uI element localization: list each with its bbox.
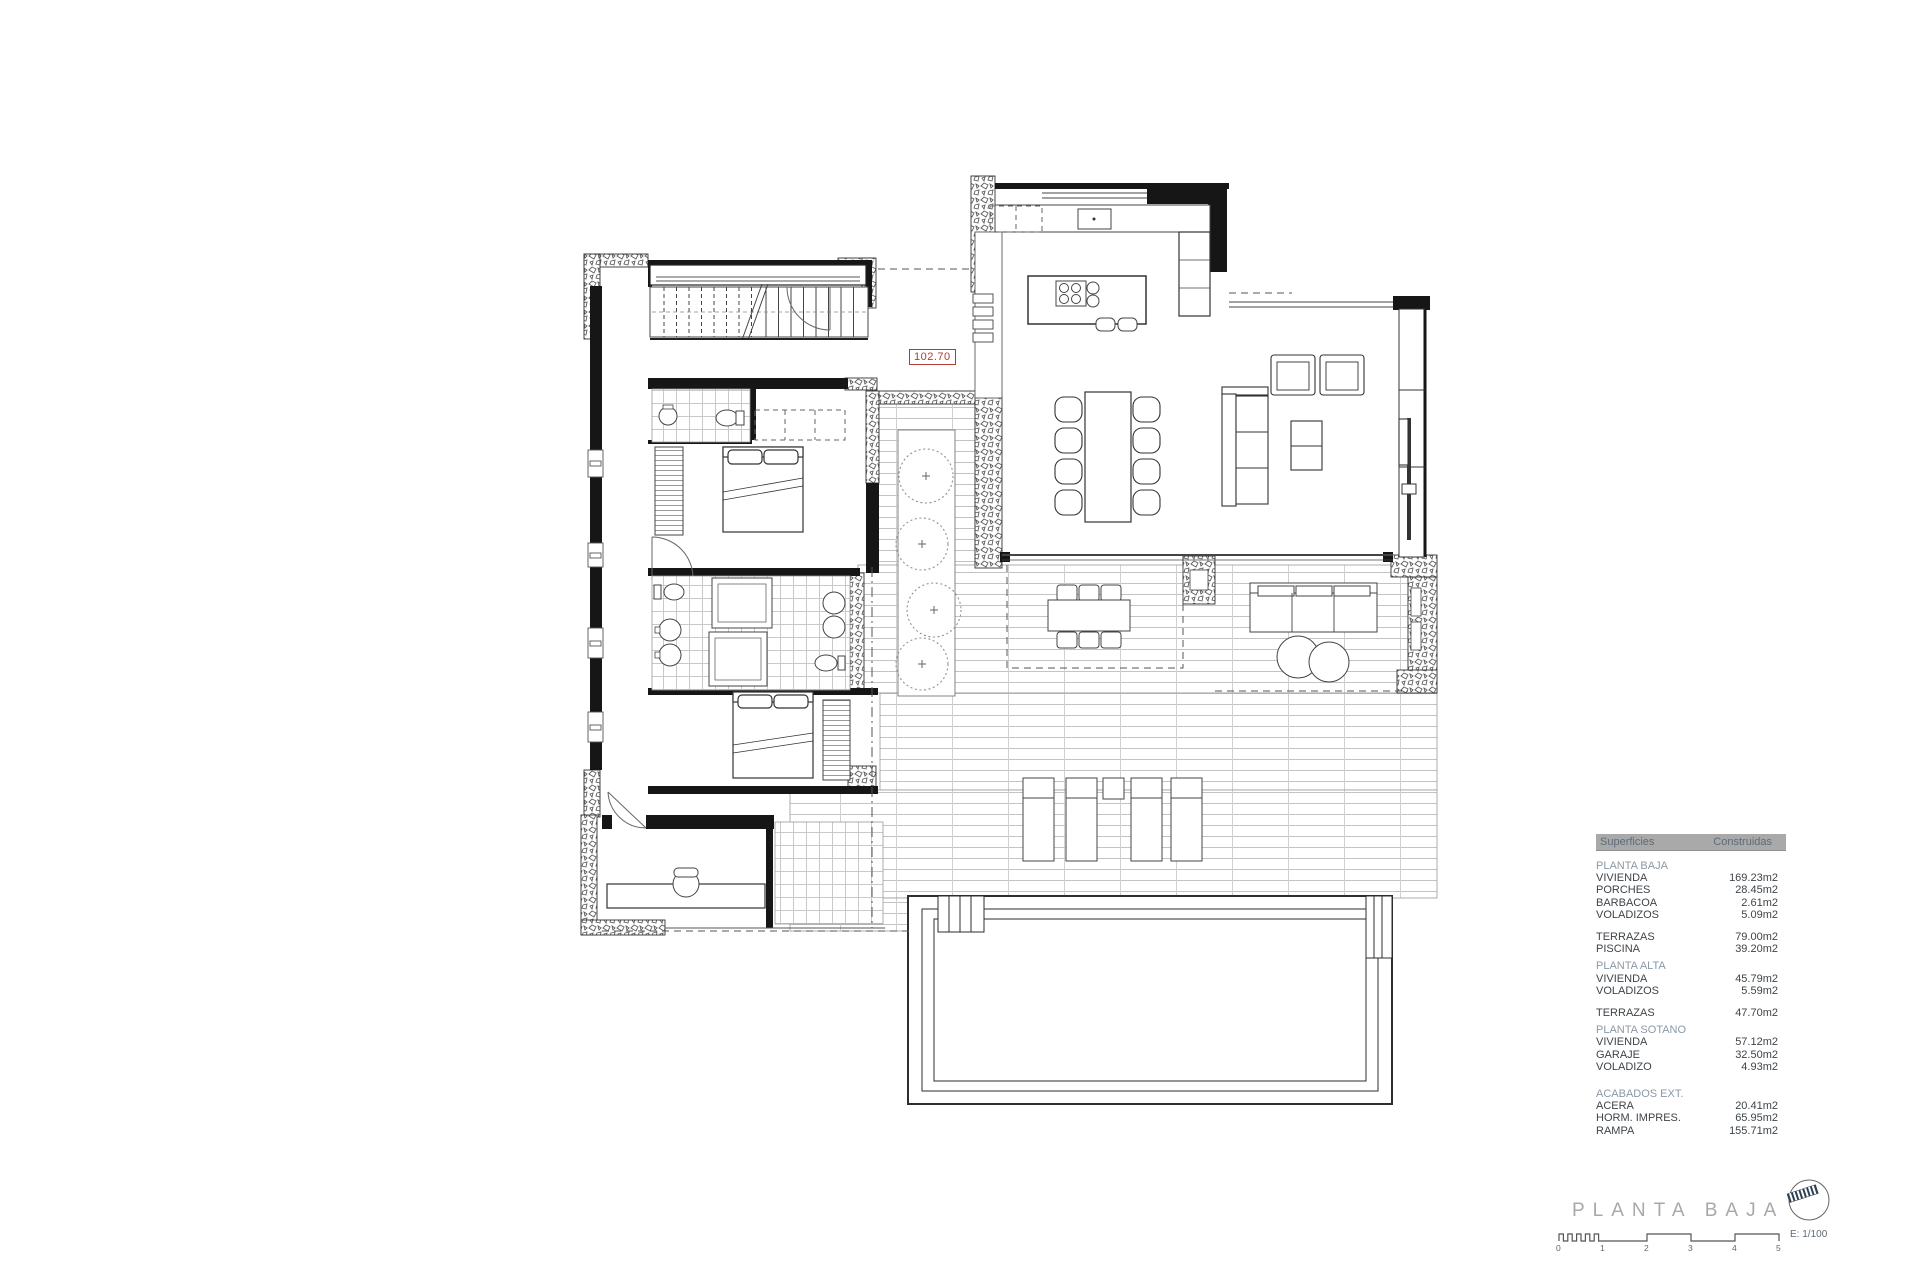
area-item-row: TERRAZAS79.00m2 bbox=[1596, 931, 1786, 943]
kitchen-island bbox=[1028, 276, 1146, 331]
area-label: VOLADIZOS bbox=[1596, 909, 1659, 921]
area-section-row: PLANTA SOTANO bbox=[1596, 1024, 1786, 1036]
area-value: 79.00m2 bbox=[1735, 931, 1786, 943]
pool bbox=[908, 896, 1392, 1104]
area-value: 2.61m2 bbox=[1741, 897, 1786, 909]
area-value: 32.50m2 bbox=[1735, 1049, 1786, 1061]
architect-logo-icon bbox=[1784, 1178, 1834, 1226]
area-label: TERRAZAS bbox=[1596, 1007, 1655, 1019]
area-value: 57.12m2 bbox=[1735, 1036, 1786, 1048]
pouf bbox=[1309, 642, 1349, 682]
area-label: PISCINA bbox=[1596, 943, 1640, 955]
living-room-furniture bbox=[1222, 355, 1408, 506]
tv-bench bbox=[1399, 419, 1408, 465]
area-value: 47.70m2 bbox=[1735, 1007, 1786, 1019]
area-item-row: HORM. IMPRES.65.95m2 bbox=[1596, 1112, 1786, 1124]
area-section-row: PLANTA ALTA bbox=[1596, 960, 1786, 972]
area-label: VIVIENDA bbox=[1596, 973, 1647, 985]
scale-tick-label: 1 bbox=[1600, 1243, 1605, 1253]
area-label: BARBACOA bbox=[1596, 897, 1657, 909]
area-label: PORCHES bbox=[1596, 884, 1650, 896]
area-item-row: ACERA20.41m2 bbox=[1596, 1100, 1786, 1112]
area-value: 45.79m2 bbox=[1735, 973, 1786, 985]
outdoor-dining-set bbox=[1048, 585, 1130, 648]
area-label: PLANTA SOTANO bbox=[1596, 1024, 1686, 1036]
table-gap bbox=[1596, 921, 1786, 931]
scale-tick-label: 5 bbox=[1776, 1243, 1781, 1253]
area-item-row: RAMPA155.71m2 bbox=[1596, 1125, 1786, 1137]
area-value: 5.59m2 bbox=[1741, 985, 1786, 997]
scale-text: E: 1/100 bbox=[1790, 1229, 1827, 1240]
area-label: RAMPA bbox=[1596, 1125, 1634, 1137]
area-item-row: VOLADIZOS5.59m2 bbox=[1596, 985, 1786, 997]
area-value: 28.45m2 bbox=[1735, 884, 1786, 896]
coffee-table bbox=[1291, 421, 1322, 470]
kitchen bbox=[973, 205, 1210, 342]
area-label: GARAJE bbox=[1596, 1049, 1640, 1061]
area-item-row: VIVIENDA57.12m2 bbox=[1596, 1036, 1786, 1048]
area-item-row: VIVIENDA45.79m2 bbox=[1596, 973, 1786, 985]
bed bbox=[723, 447, 803, 532]
area-item-row: GARAJE32.50m2 bbox=[1596, 1049, 1786, 1061]
areas-table-rows: PLANTA BAJAVIVIENDA169.23m2PORCHES28.45m… bbox=[1596, 851, 1786, 1137]
bathroom-top bbox=[652, 389, 750, 442]
area-value: 65.95m2 bbox=[1735, 1112, 1786, 1124]
bedroom-1 bbox=[655, 447, 803, 535]
areas-table-header: Superficies Construidas bbox=[1596, 834, 1786, 851]
entry-wall-band bbox=[650, 265, 866, 285]
area-label: VOLADIZOS bbox=[1596, 985, 1659, 997]
area-label: PLANTA BAJA bbox=[1596, 860, 1668, 872]
area-section-row: ACABADOS EXT. bbox=[1596, 1088, 1786, 1100]
area-value: 4.93m2 bbox=[1741, 1061, 1786, 1073]
planter-trees bbox=[896, 430, 961, 696]
area-value: 169.23m2 bbox=[1729, 872, 1786, 884]
stool bbox=[1118, 318, 1137, 331]
area-value: 20.41m2 bbox=[1735, 1100, 1786, 1112]
area-label: ACABADOS EXT. bbox=[1596, 1088, 1683, 1100]
area-label: TERRAZAS bbox=[1596, 931, 1655, 943]
area-label: VIVIENDA bbox=[1596, 872, 1647, 884]
bathroom-middle bbox=[652, 576, 850, 690]
side-table bbox=[1103, 778, 1124, 799]
area-label: VOLADIZO bbox=[1596, 1061, 1652, 1073]
floor-plan-sheet: 102.70 Superficies Construidas PLANTA BA… bbox=[0, 0, 1920, 1280]
area-value: 39.20m2 bbox=[1735, 943, 1786, 955]
level-annotation: 102.70 bbox=[909, 349, 956, 365]
area-value: 155.71m2 bbox=[1729, 1125, 1786, 1137]
area-item-row: VOLADIZO4.93m2 bbox=[1596, 1061, 1786, 1073]
wardrobe bbox=[823, 700, 850, 780]
area-label: PLANTA ALTA bbox=[1596, 960, 1666, 972]
dining-set bbox=[1055, 392, 1160, 522]
bed bbox=[733, 692, 813, 778]
scale-tick-label: 4 bbox=[1732, 1243, 1737, 1253]
closet-dashed bbox=[755, 410, 845, 440]
area-item-row: PORCHES28.45m2 bbox=[1596, 884, 1786, 896]
area-section-row: PLANTA BAJA bbox=[1596, 860, 1786, 872]
sheet-title: PLANTA BAJA bbox=[1572, 1200, 1788, 1222]
area-item-row: TERRAZAS47.70m2 bbox=[1596, 1007, 1786, 1019]
area-label: VIVIENDA bbox=[1596, 1036, 1647, 1048]
bedroom-2 bbox=[733, 692, 850, 780]
tall-unit bbox=[1179, 232, 1210, 316]
armchair bbox=[1271, 355, 1315, 395]
stool bbox=[1096, 318, 1115, 331]
areas-col-superficies: Superficies bbox=[1600, 836, 1654, 848]
sofa bbox=[1222, 387, 1268, 506]
table-gap bbox=[1596, 997, 1786, 1007]
scale-tick-label: 0 bbox=[1556, 1243, 1561, 1253]
area-label: ACERA bbox=[1596, 1100, 1634, 1112]
scale-tick-labels: 012345 bbox=[1552, 1243, 1792, 1255]
area-item-row: VOLADIZOS5.09m2 bbox=[1596, 909, 1786, 921]
area-item-row: PISCINA39.20m2 bbox=[1596, 943, 1786, 955]
staircase bbox=[650, 284, 868, 340]
area-item-row: BARBACOA2.61m2 bbox=[1596, 897, 1786, 909]
porch-tiles bbox=[775, 822, 883, 924]
areas-col-construidas: Construidas bbox=[1713, 836, 1772, 848]
table-gap bbox=[1596, 1073, 1786, 1083]
wardrobe bbox=[655, 447, 683, 535]
area-label: HORM. IMPRES. bbox=[1596, 1112, 1681, 1124]
area-value: 5.09m2 bbox=[1741, 909, 1786, 921]
area-item-row: VIVIENDA169.23m2 bbox=[1596, 872, 1786, 884]
scale-tick-label: 2 bbox=[1644, 1243, 1649, 1253]
armchair bbox=[1320, 355, 1364, 395]
scale-tick-label: 3 bbox=[1688, 1243, 1693, 1253]
areas-table: Superficies Construidas PLANTA BAJAVIVIE… bbox=[1596, 834, 1786, 1137]
